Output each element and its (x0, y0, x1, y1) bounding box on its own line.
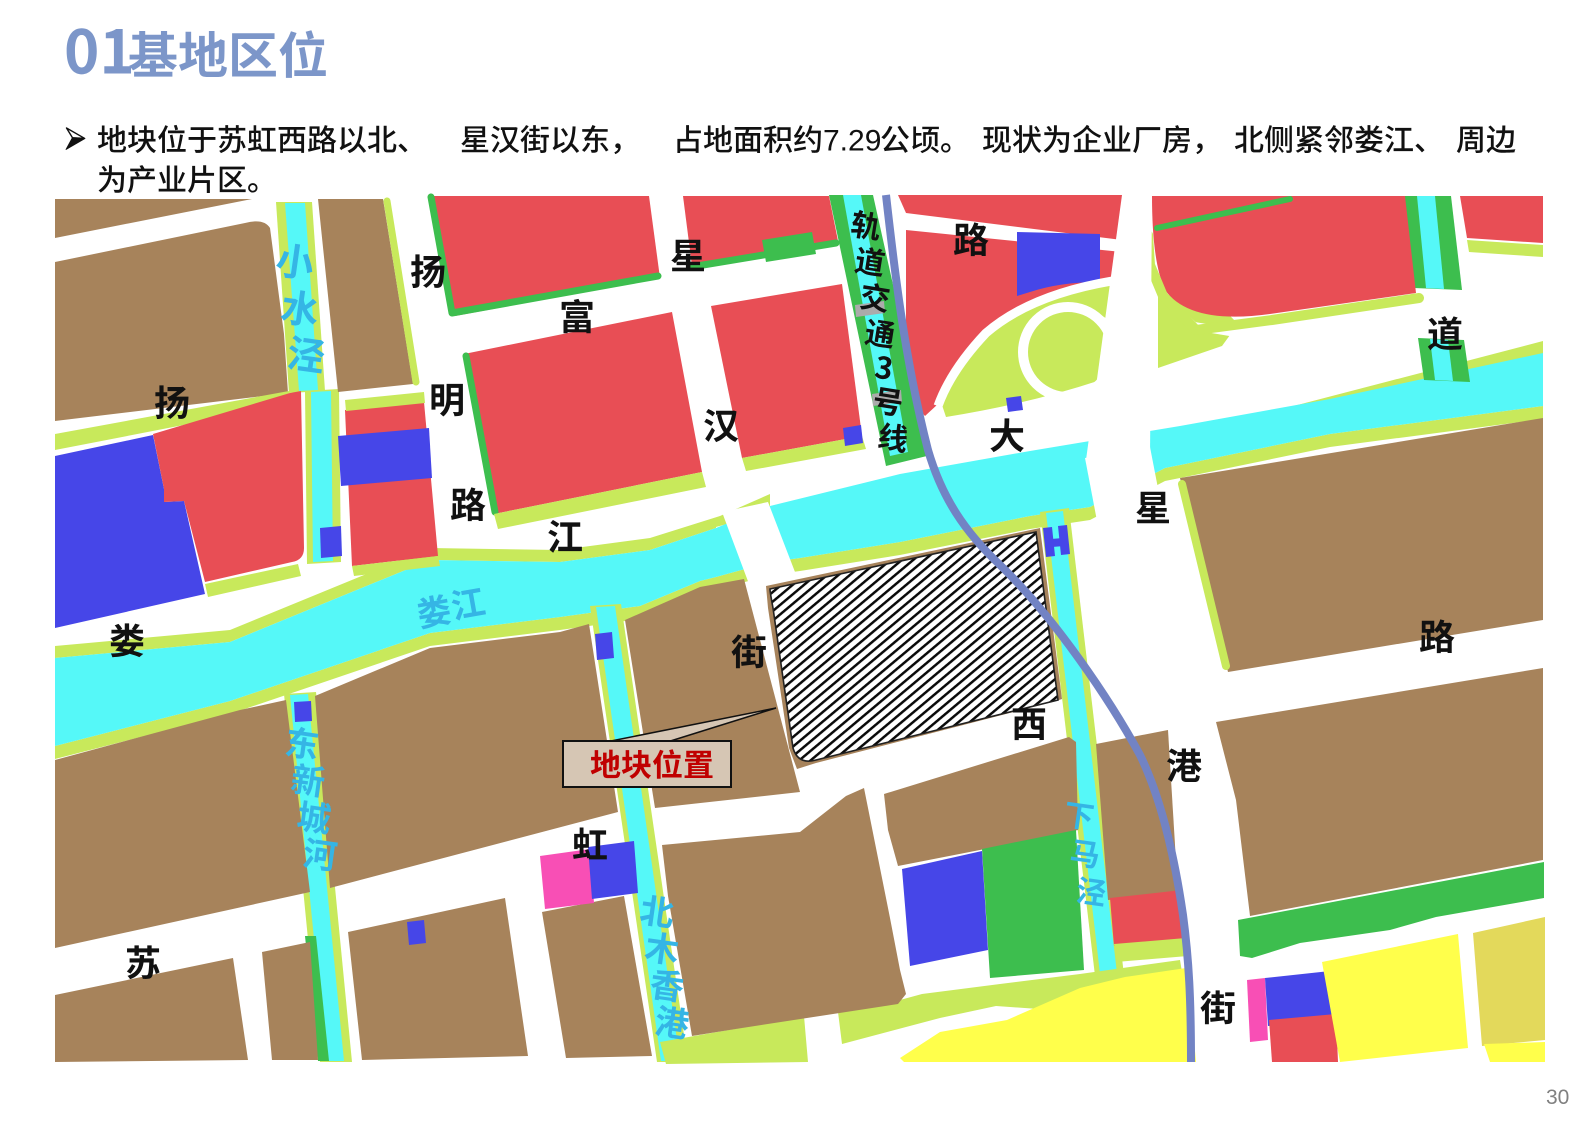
svg-text:7.29: 7.29 (823, 125, 881, 158)
svg-text:30: 30 (1546, 1086, 1569, 1109)
